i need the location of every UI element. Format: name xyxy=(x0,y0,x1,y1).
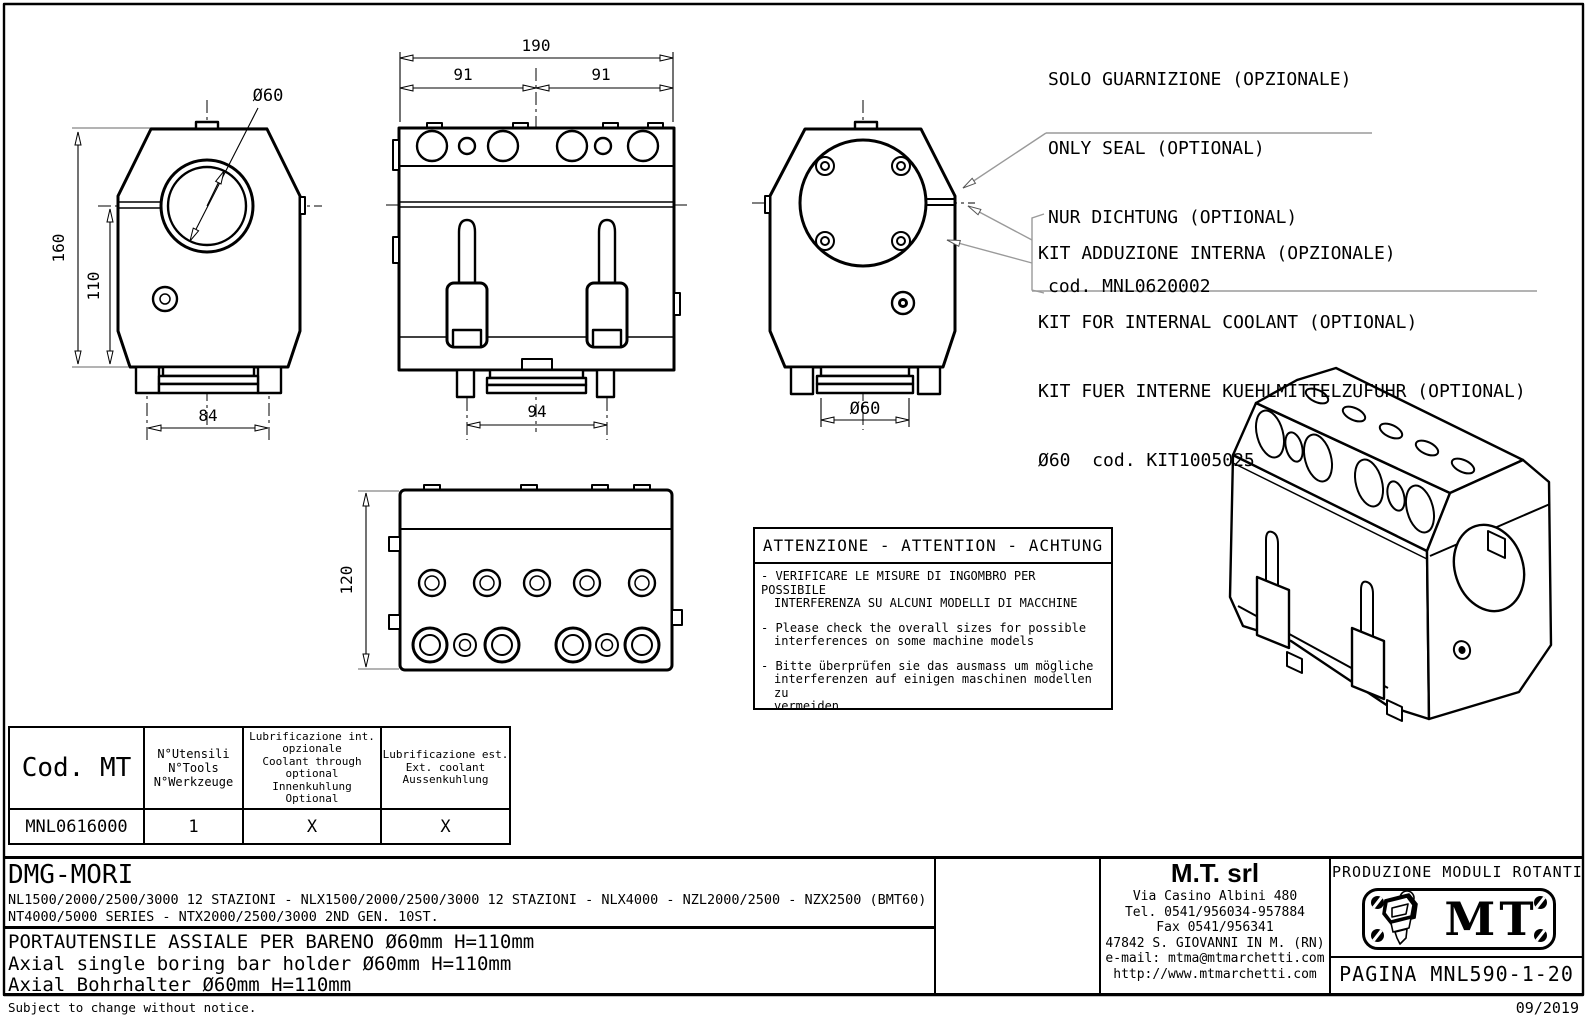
spec-header-ext-line3: Aussenkuhlung xyxy=(402,774,488,787)
bottom-view-dimensions: 120 xyxy=(337,491,399,669)
note-coolant-kit: KIT ADDUZIONE INTERNA (OPZIONALE) KIT FO… xyxy=(1038,196,1526,495)
dim-base-diameter: Ø60 xyxy=(850,399,881,419)
customer-brand: DMG-MORI xyxy=(8,860,133,890)
company-block: M.T. srl Via Casino Albini 480 Tel. 0541… xyxy=(1101,858,1329,993)
page-number: PAGINA MNL590-1-20 xyxy=(1332,962,1581,986)
spec-header-internal-coolant: Lubrificazione int. opzionale Coolant th… xyxy=(244,728,382,808)
company-fax: Fax 0541/956341 xyxy=(1101,920,1329,936)
company-address: Via Casino Albini 480 xyxy=(1101,889,1329,905)
spec-table: Cod. MT N°Utensili N°Tools N°Werkzeuge L… xyxy=(8,726,511,845)
machine-models-line2: NT4000/5000 SERIES - NTX2000/2500/3000 2… xyxy=(8,909,439,925)
dim-half-width-left-91: 91 xyxy=(453,65,472,84)
footer-date: 09/2019 xyxy=(1516,999,1579,1017)
right-view xyxy=(752,100,975,430)
spec-header-tools: N°Utensili N°Tools N°Werkzeuge xyxy=(145,728,244,808)
machine-models-line1: NL1500/2000/2500/3000 12 STAZIONI - NLX1… xyxy=(8,892,926,908)
company-name: M.T. srl xyxy=(1171,858,1259,889)
producer-cell-divider xyxy=(1329,956,1583,958)
attention-item-de-line3: vermeiden xyxy=(761,700,1106,714)
spec-header-ext-line1: Lubrificazione est. xyxy=(383,749,509,762)
dim-half-width-right-91: 91 xyxy=(591,65,610,84)
dim-height-160: 160 xyxy=(49,234,68,263)
attention-title: ATTENZIONE - ATTENTION - ACHTUNG xyxy=(755,529,1111,564)
attention-item-en-line1: - Please check the overall sizes for pos… xyxy=(761,622,1106,636)
titleblock-divider-1 xyxy=(934,856,936,996)
company-phone: Tel. 0541/956034-957884 xyxy=(1101,905,1329,921)
spec-header-int-line6: Optional xyxy=(286,793,339,806)
spec-header-tools-de: N°Werkzeuge xyxy=(154,775,233,789)
dim-bore-diameter: Ø60 xyxy=(253,86,284,106)
titleblock-top-rule xyxy=(3,856,1583,859)
note-coolant-line-de: KIT FUER INTERNE KUEHLMITTELZUFUHR (OPTI… xyxy=(1038,380,1526,403)
mt-logo-text: MT xyxy=(1423,891,1559,946)
producer-header: PRODUZIONE MODULI ROTANTI xyxy=(1332,863,1581,881)
spec-row: MNL0616000 1 X X xyxy=(10,810,509,843)
note-coolant-line-en: KIT FOR INTERNAL COOLANT (OPTIONAL) xyxy=(1038,311,1526,334)
dim-depth-120: 120 xyxy=(337,566,356,595)
note-seal-line-it: SOLO GUARNIZIONE (OPZIONALE) xyxy=(1048,68,1351,91)
attention-item-it-line1: - VERIFICARE LE MISURE DI INGOMBRO PER P… xyxy=(761,570,1106,597)
note-coolant-code: Ø60 cod. KIT1005025 xyxy=(1038,449,1526,472)
attention-box: ATTENZIONE - ATTENTION - ACHTUNG - VERIF… xyxy=(753,527,1113,710)
spec-row-coolant-int: X xyxy=(244,810,382,843)
mt-logo: MT xyxy=(1362,888,1556,950)
company-website: http://www.mtmarchetti.com xyxy=(1101,967,1329,983)
spec-header-int-line4: optional xyxy=(286,768,339,781)
part-title-it: PORTAUTENSILE ASSIALE PER BARENO Ø60mm H… xyxy=(8,931,534,953)
drawing-sheet: 160 110 84 Ø60 xyxy=(0,0,1589,1026)
spec-row-coolant-ext: X xyxy=(382,810,509,843)
dim-bore-height-110: 110 xyxy=(84,272,103,301)
attention-item-it-line2: INTERFERENZA SU ALCUNI MODELLI DI MACCHI… xyxy=(761,597,1106,611)
company-city: 47842 S. GIOVANNI IN M. (RN) xyxy=(1101,936,1329,952)
note-coolant-line-it: KIT ADDUZIONE INTERNA (OPZIONALE) xyxy=(1038,242,1526,265)
part-title-en: Axial single boring bar holder Ø60mm H=1… xyxy=(8,953,511,975)
attention-item-it: - VERIFICARE LE MISURE DI INGOMBRO PER P… xyxy=(761,570,1106,611)
spec-row-code: MNL0616000 xyxy=(10,810,145,843)
note-seal-line-en: ONLY SEAL (OPTIONAL) xyxy=(1048,137,1351,160)
spec-header-tools-it: N°Utensili xyxy=(157,747,229,761)
titleblock-divider-3 xyxy=(1329,856,1331,996)
company-email: e-mail: mtma@mtmarchetti.com xyxy=(1101,951,1329,967)
footer-disclaimer: Subject to change without notice. xyxy=(8,1000,256,1015)
titleblock-mid-rule xyxy=(3,926,936,929)
part-title-de: Axial Bohrhalter Ø60mm H=110mm xyxy=(8,974,351,996)
spec-header-external-coolant: Lubrificazione est. Ext. coolant Aussenk… xyxy=(382,728,509,808)
bottom-view xyxy=(389,485,682,670)
spec-header-int-line2: opzionale xyxy=(282,743,342,756)
attention-item-de: - Bitte überprüfen sie das ausmass um mö… xyxy=(761,660,1106,714)
mt-logo-tool-icon xyxy=(1375,888,1421,946)
spec-row-tools: 1 xyxy=(145,810,244,843)
dim-base-width-84: 84 xyxy=(198,406,217,425)
spec-header-tools-en: N°Tools xyxy=(168,761,219,775)
dim-clamp-pitch-94: 94 xyxy=(527,402,546,421)
side-view xyxy=(386,68,688,440)
attention-item-en-line2: interferences on some machine models xyxy=(761,635,1106,649)
attention-item-en: - Please check the overall sizes for pos… xyxy=(761,622,1106,649)
attention-item-de-line2: interferenzen auf einigen maschinen mode… xyxy=(761,673,1106,700)
right-view-dimensions: Ø60 xyxy=(821,398,909,427)
attention-item-de-line1: - Bitte überprüfen sie das ausmass um mö… xyxy=(761,660,1106,674)
spec-header-code: Cod. MT xyxy=(10,728,145,808)
dim-total-width-190: 190 xyxy=(522,36,551,55)
